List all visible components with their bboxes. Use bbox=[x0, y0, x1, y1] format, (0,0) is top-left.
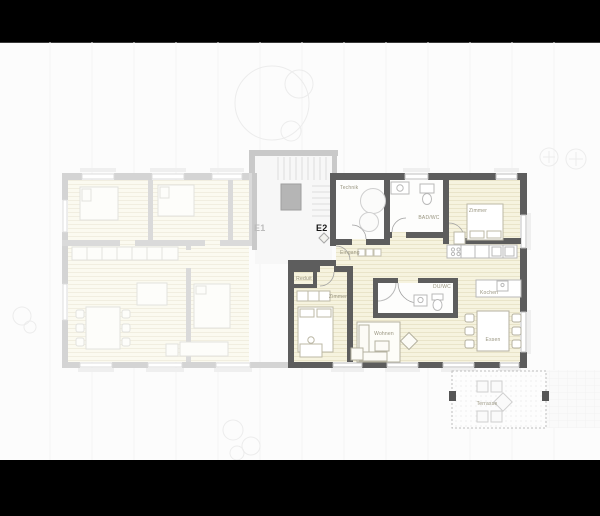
room-label-zimmer-top: Zimmer bbox=[469, 208, 487, 214]
room-label-terrasse: Terrasse bbox=[477, 401, 498, 407]
room-label-bad-wc: BAD/WC bbox=[418, 215, 439, 221]
screenshot-frame: Technik BAD/WC Zimmer Eingang Reduit Zim… bbox=[0, 0, 600, 516]
room-label-zimmer-lower: Zimmer bbox=[329, 294, 347, 300]
top-letterbox-bar bbox=[0, 0, 600, 42]
paving bbox=[546, 370, 600, 428]
room-label-eingang: Eingang bbox=[340, 250, 360, 256]
room-label-du-wc: DU/WC bbox=[433, 284, 451, 290]
stairwell bbox=[249, 150, 338, 264]
kitchen-counter-icon bbox=[447, 245, 517, 258]
bed-symbol-lower bbox=[297, 291, 333, 357]
terrace-post-icon bbox=[542, 391, 549, 401]
room-label-technik: Technik bbox=[340, 185, 359, 191]
unit-label-e2[interactable]: E2 bbox=[316, 223, 328, 233]
room-label-kochen: Kochen bbox=[480, 290, 498, 296]
elevator-icon bbox=[281, 184, 301, 210]
room-label-reduit: Reduit bbox=[296, 276, 312, 282]
room-label-wohnen: Wohnen bbox=[374, 331, 394, 337]
unit-label-e1[interactable]: E1 bbox=[254, 223, 266, 233]
dining-table-icon bbox=[465, 311, 521, 351]
hall-cabinet-icon bbox=[358, 249, 381, 256]
terrace: Terrasse bbox=[449, 371, 549, 428]
room-label-essen: Essen bbox=[486, 337, 501, 343]
floor-plan: Technik BAD/WC Zimmer Eingang Reduit Zim… bbox=[0, 0, 600, 516]
terrace-post-icon bbox=[449, 391, 456, 401]
bottom-letterbox-bar bbox=[0, 460, 600, 516]
